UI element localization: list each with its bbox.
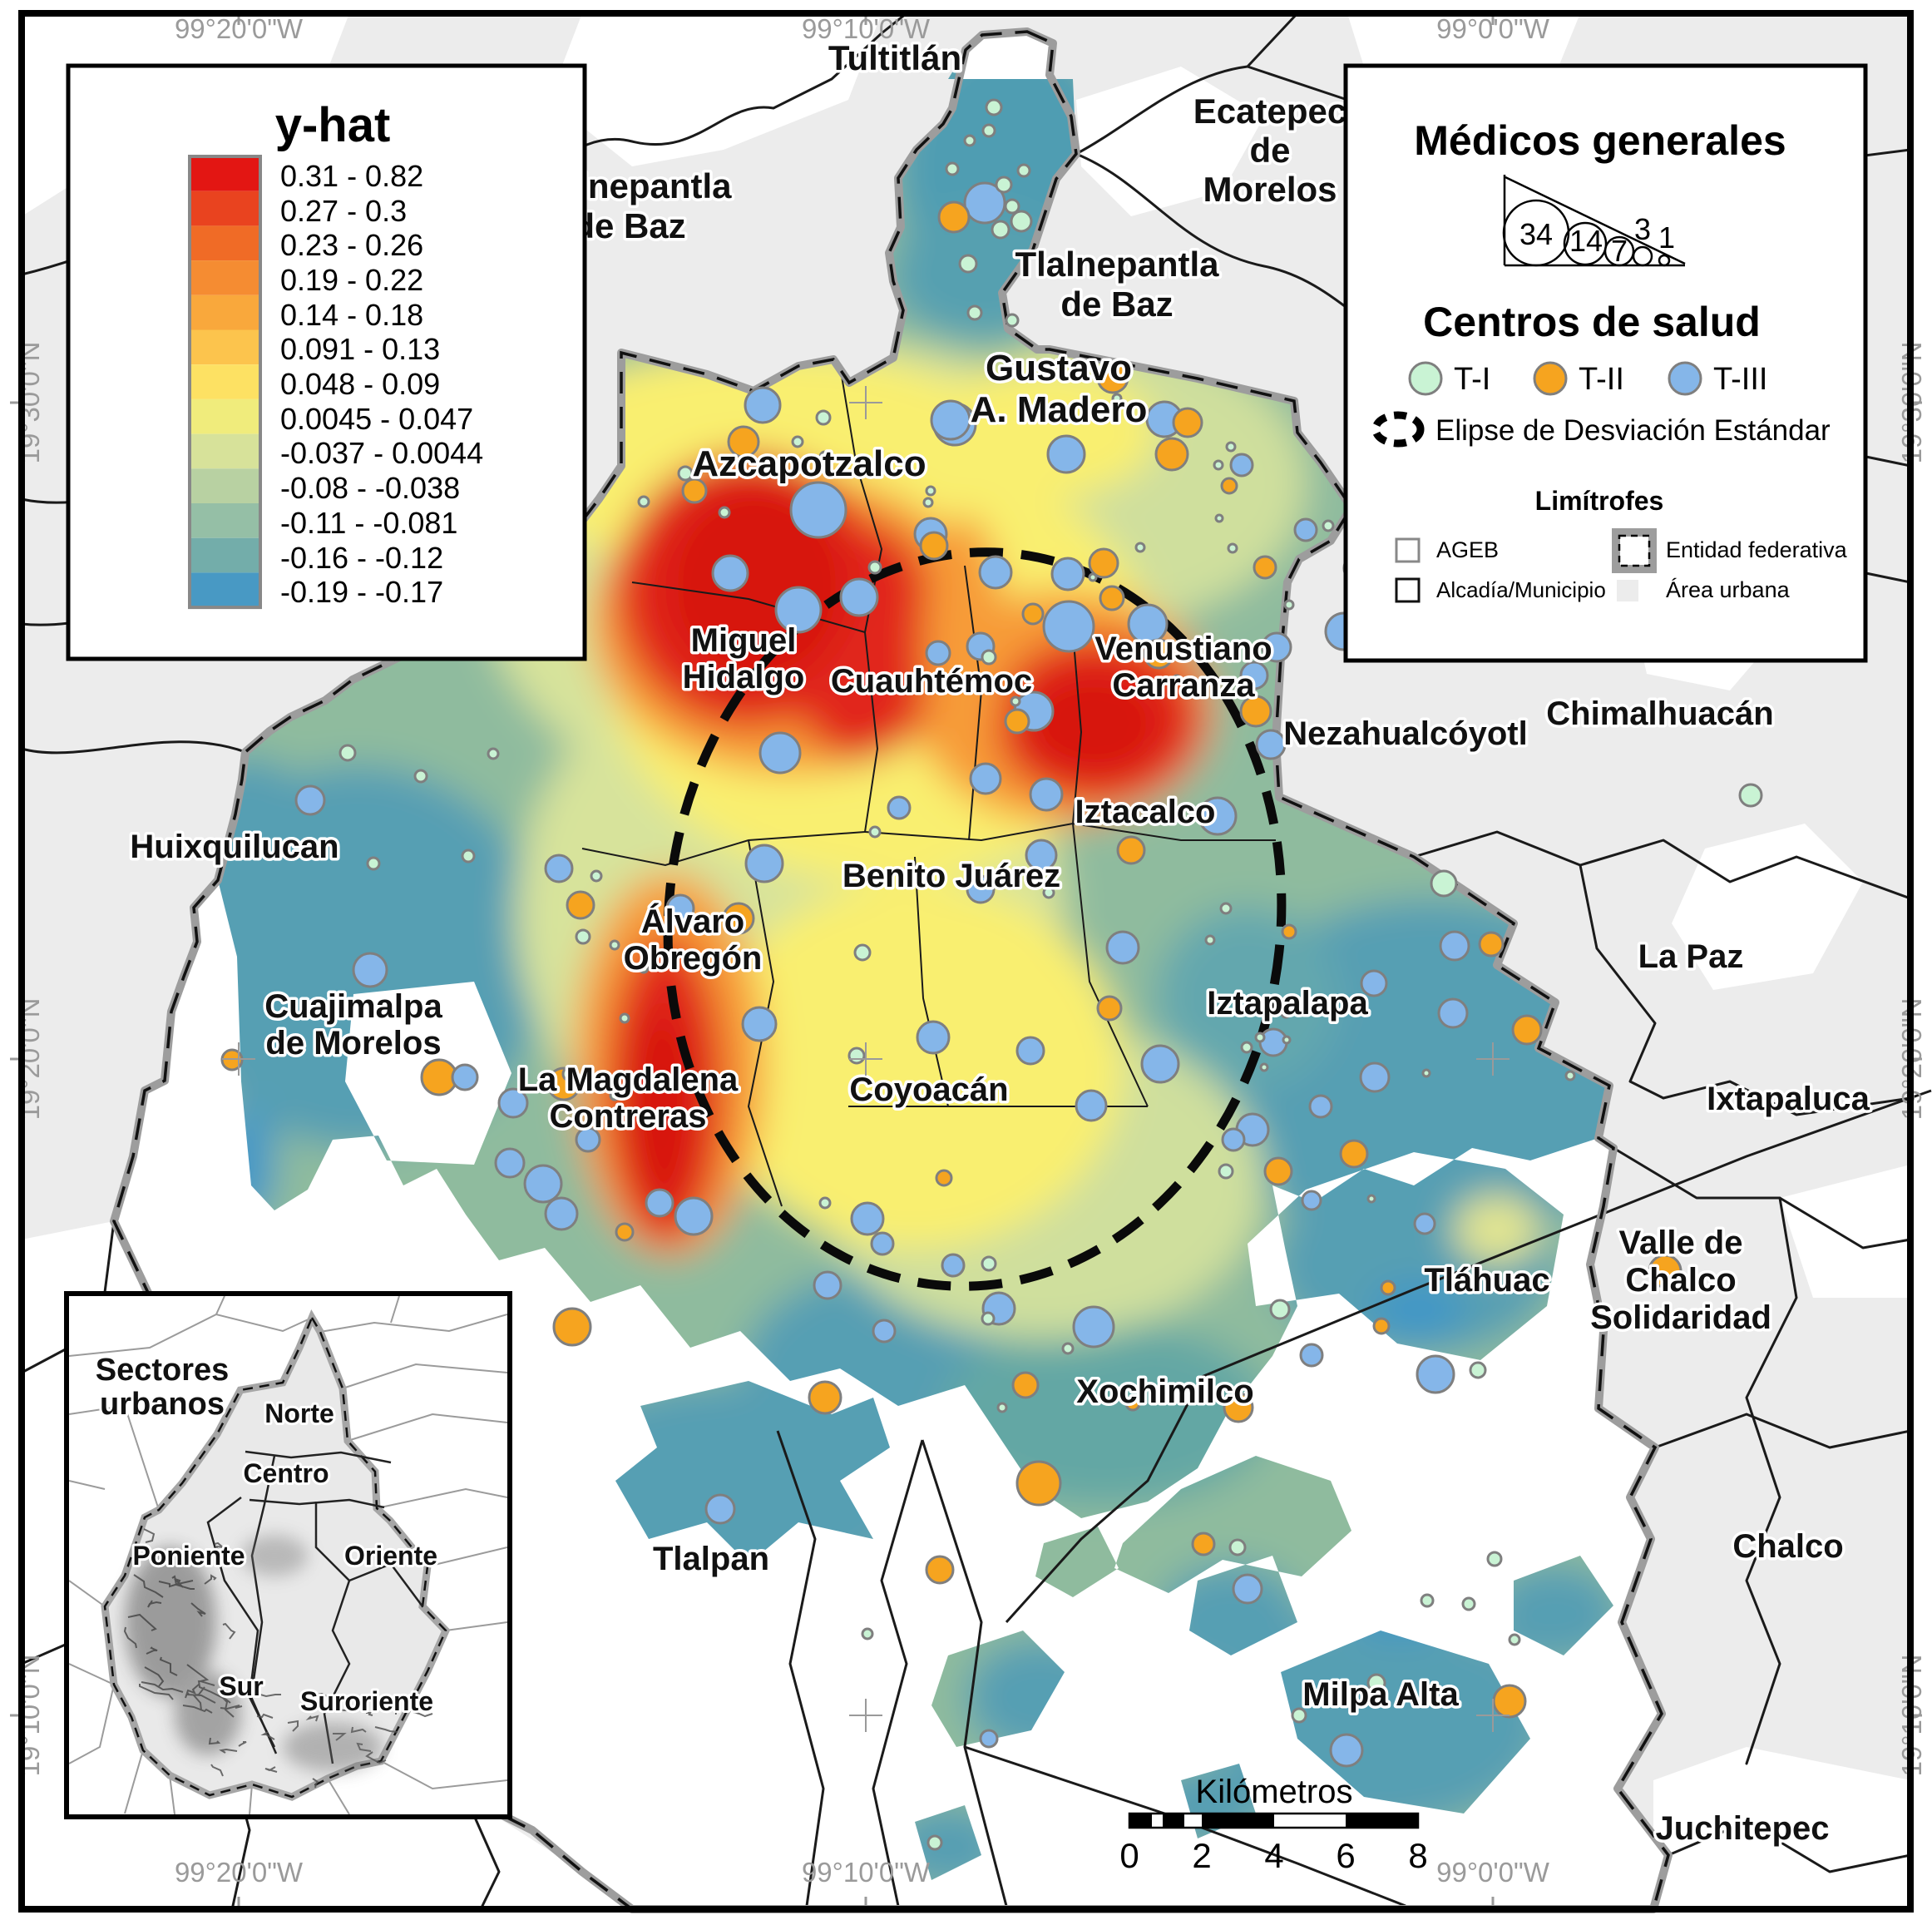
svg-text:Alcadía/Municipio: Alcadía/Municipio xyxy=(1436,577,1606,602)
svg-text:0.091 - 0.13: 0.091 - 0.13 xyxy=(280,332,440,366)
svg-text:Álvaro: Álvaro xyxy=(641,903,745,940)
svg-text:T-II: T-II xyxy=(1579,362,1624,397)
svg-text:Valle de: Valle de xyxy=(1619,1225,1743,1261)
svg-text:Poniente: Poniente xyxy=(132,1541,245,1571)
svg-text:Oriente: Oriente xyxy=(344,1541,437,1571)
svg-text:Centros de salud: Centros de salud xyxy=(1423,299,1761,345)
svg-text:Iztacalco: Iztacalco xyxy=(1075,794,1216,830)
svg-text:Benito Juárez: Benito Juárez xyxy=(842,858,1060,894)
svg-text:Kilómetros: Kilómetros xyxy=(1196,1774,1353,1810)
svg-text:3: 3 xyxy=(1634,212,1651,246)
svg-text:Solidaridad: Solidaridad xyxy=(1590,1299,1771,1336)
svg-text:T-III: T-III xyxy=(1713,362,1767,397)
svg-text:de Baz: de Baz xyxy=(573,206,685,245)
svg-text:Tultitlán: Tultitlán xyxy=(828,38,961,77)
svg-text:0.14 - 0.18: 0.14 - 0.18 xyxy=(280,298,423,332)
svg-text:7: 7 xyxy=(1611,234,1628,268)
svg-text:de Morelos: de Morelos xyxy=(265,1025,441,1061)
svg-text:Coyoacán: Coyoacán xyxy=(849,1071,1008,1108)
svg-text:0.0045 - 0.047: 0.0045 - 0.047 xyxy=(280,402,473,436)
svg-text:Centro: Centro xyxy=(243,1458,329,1488)
svg-text:urbanos: urbanos xyxy=(100,1387,225,1422)
svg-text:-0.19 - -0.17: -0.19 - -0.17 xyxy=(280,575,443,609)
svg-text:2: 2 xyxy=(1192,1836,1211,1875)
svg-text:Iztapalapa: Iztapalapa xyxy=(1207,985,1368,1022)
svg-text:Chalco: Chalco xyxy=(1732,1528,1843,1565)
svg-text:Chimalhuacán: Chimalhuacán xyxy=(1546,695,1773,732)
svg-text:La Paz: La Paz xyxy=(1638,938,1744,975)
svg-text:La Magdalena: La Magdalena xyxy=(518,1061,739,1098)
svg-text:y-hat: y-hat xyxy=(275,98,391,152)
svg-text:Azcapotzalco: Azcapotzalco xyxy=(692,443,926,484)
svg-text:-0.11 - -0.081: -0.11 - -0.081 xyxy=(280,506,457,540)
svg-text:Sectores: Sectores xyxy=(96,1353,230,1388)
svg-text:99°10'0"W: 99°10'0"W xyxy=(802,1857,931,1888)
svg-text:Elipse de Desviación Estándar: Elipse de Desviación Estándar xyxy=(1435,414,1831,447)
svg-text:Nezahualcóyotl: Nezahualcóyotl xyxy=(1283,715,1527,752)
svg-text:Contreras: Contreras xyxy=(550,1098,707,1135)
svg-text:Cuajimalpa: Cuajimalpa xyxy=(264,988,442,1025)
svg-text:A. Madero: A. Madero xyxy=(971,389,1148,430)
svg-text:Cuauhtémoc: Cuauhtémoc xyxy=(831,663,1032,700)
svg-text:6: 6 xyxy=(1336,1836,1355,1875)
svg-text:Venustiano: Venustiano xyxy=(1094,631,1272,667)
svg-text:Hidalgo: Hidalgo xyxy=(683,659,805,695)
svg-text:de Baz: de Baz xyxy=(1060,285,1173,324)
svg-text:0.27 - 0.3: 0.27 - 0.3 xyxy=(280,194,407,228)
svg-text:Morelos: Morelos xyxy=(1203,170,1337,209)
svg-text:Médicos generales: Médicos generales xyxy=(1414,117,1786,164)
svg-text:0.31 - 0.82: 0.31 - 0.82 xyxy=(280,159,423,193)
svg-text:Miguel: Miguel xyxy=(691,622,797,659)
svg-text:de: de xyxy=(1249,131,1290,170)
svg-text:0.23 - 0.26: 0.23 - 0.26 xyxy=(280,228,423,262)
svg-text:4: 4 xyxy=(1264,1836,1283,1875)
svg-text:-0.16 - -0.12: -0.16 - -0.12 xyxy=(280,541,443,575)
svg-text:Milpa Alta: Milpa Alta xyxy=(1302,1676,1459,1713)
svg-text:Entidad federativa: Entidad federativa xyxy=(1666,537,1848,562)
svg-text:Suroriente: Suroriente xyxy=(300,1686,433,1716)
svg-text:Ixtapaluca: Ixtapaluca xyxy=(1707,1081,1870,1117)
svg-text:Huixquilucan: Huixquilucan xyxy=(130,829,338,865)
svg-text:Tláhuac: Tláhuac xyxy=(1424,1262,1549,1299)
svg-text:Área urbana: Área urbana xyxy=(1666,577,1791,602)
svg-text:8: 8 xyxy=(1408,1836,1427,1875)
svg-text:Carranza: Carranza xyxy=(1112,667,1255,704)
svg-text:Juchitepec: Juchitepec xyxy=(1656,1810,1830,1847)
svg-text:99°20'0"W: 99°20'0"W xyxy=(175,1857,304,1888)
svg-text:Limítrofes: Limítrofes xyxy=(1535,486,1664,516)
svg-text:-0.037 - 0.0044: -0.037 - 0.0044 xyxy=(280,436,483,470)
svg-text:Ecatepec: Ecatepec xyxy=(1193,92,1346,131)
svg-text:0.19 - 0.22: 0.19 - 0.22 xyxy=(280,263,423,297)
svg-text:AGEB: AGEB xyxy=(1436,537,1499,562)
svg-text:Sur: Sur xyxy=(219,1671,263,1701)
svg-text:0: 0 xyxy=(1119,1836,1139,1875)
svg-text:14: 14 xyxy=(1569,224,1603,258)
svg-text:T-I: T-I xyxy=(1454,362,1490,397)
svg-text:Tlalpan: Tlalpan xyxy=(653,1541,769,1577)
svg-text:-0.08 - -0.038: -0.08 - -0.038 xyxy=(280,471,460,505)
svg-text:Obregón: Obregón xyxy=(624,940,763,977)
svg-text:Gustavo: Gustavo xyxy=(986,348,1132,388)
svg-text:34: 34 xyxy=(1519,217,1553,251)
svg-text:0.048 - 0.09: 0.048 - 0.09 xyxy=(280,367,440,401)
svg-text:1: 1 xyxy=(1658,220,1675,255)
svg-text:Xochimilco: Xochimilco xyxy=(1076,1373,1253,1410)
svg-text:Tlalnepantla: Tlalnepantla xyxy=(1015,245,1219,284)
svg-text:Norte: Norte xyxy=(264,1398,334,1428)
svg-text:99°0'0"W: 99°0'0"W xyxy=(1436,1857,1550,1888)
svg-text:Chalco: Chalco xyxy=(1625,1262,1736,1299)
